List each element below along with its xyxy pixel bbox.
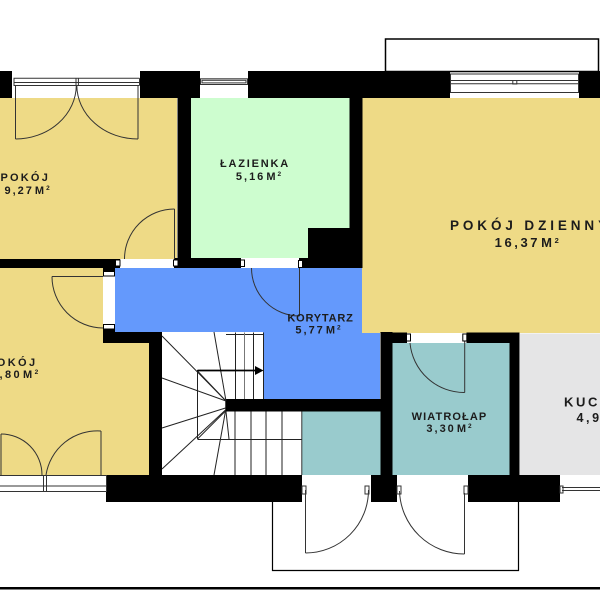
svg-text:WIATROŁAP: WIATROŁAP bbox=[412, 411, 488, 423]
svg-text:16,37M2: 16,37M2 bbox=[495, 235, 562, 250]
svg-text:POKÓJ: POKÓJ bbox=[0, 356, 38, 369]
svg-text:KORYTARZ: KORYTARZ bbox=[287, 313, 353, 325]
svg-text:ŁAZIENKA: ŁAZIENKA bbox=[220, 158, 290, 170]
svg-text:8,80M2: 8,80M2 bbox=[0, 369, 41, 381]
svg-text:5,16M2: 5,16M2 bbox=[236, 171, 283, 183]
svg-text:3,30M2: 3,30M2 bbox=[426, 423, 473, 435]
svg-text:POKÓJ: POKÓJ bbox=[1, 171, 51, 184]
svg-text:9,27M2: 9,27M2 bbox=[5, 185, 52, 197]
svg-text:POKÓJ DZIENNY: POKÓJ DZIENNY bbox=[450, 218, 600, 233]
svg-text:5,77M2: 5,77M2 bbox=[295, 325, 342, 337]
svg-text:4,95M2: 4,95M2 bbox=[577, 411, 600, 425]
svg-text:KUCHNIA: KUCHNIA bbox=[564, 395, 600, 410]
